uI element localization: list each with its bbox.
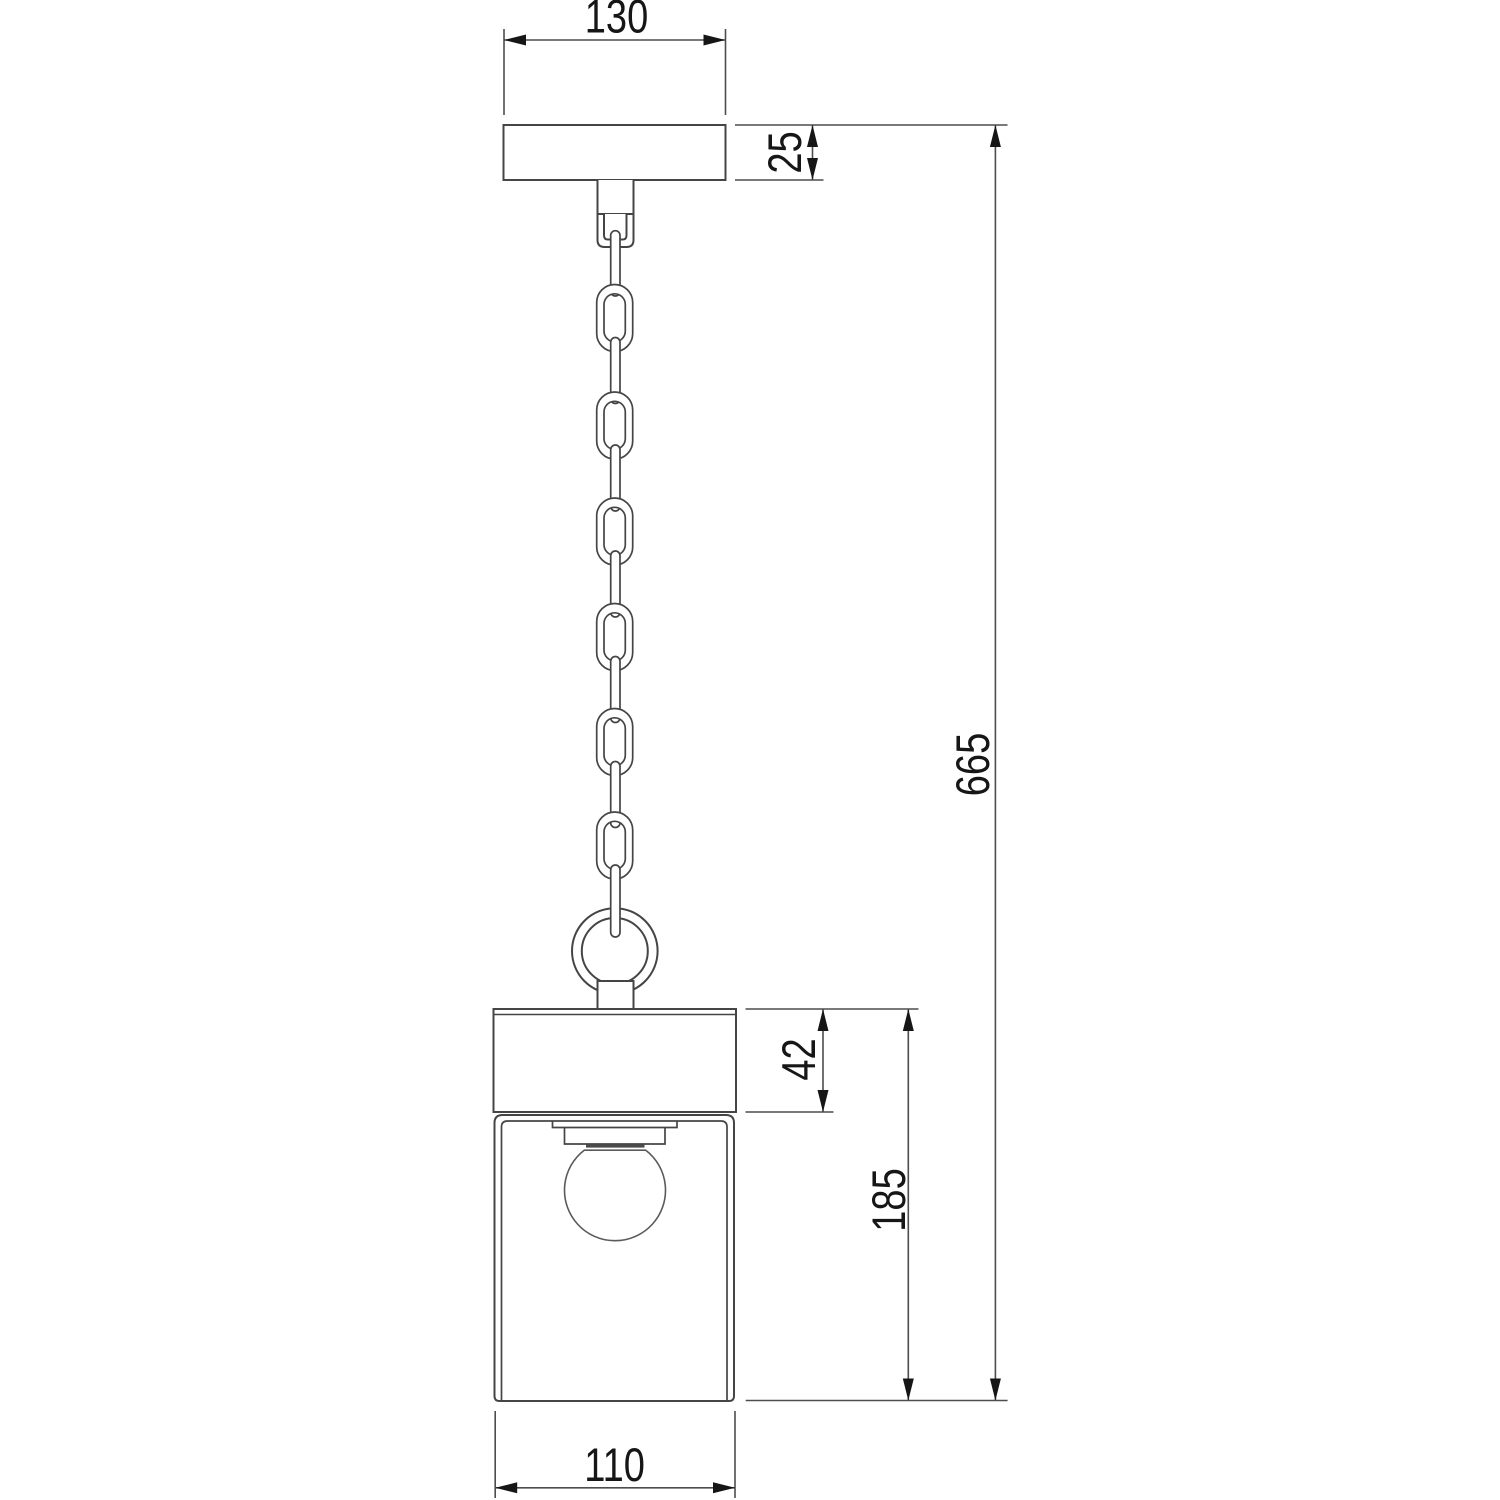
svg-text:130: 130: [585, 0, 648, 43]
svg-text:25: 25: [759, 131, 812, 173]
svg-text:665: 665: [947, 733, 1000, 796]
svg-text:185: 185: [863, 1168, 916, 1231]
svg-text:110: 110: [584, 1439, 645, 1492]
svg-text:42: 42: [773, 1038, 826, 1080]
